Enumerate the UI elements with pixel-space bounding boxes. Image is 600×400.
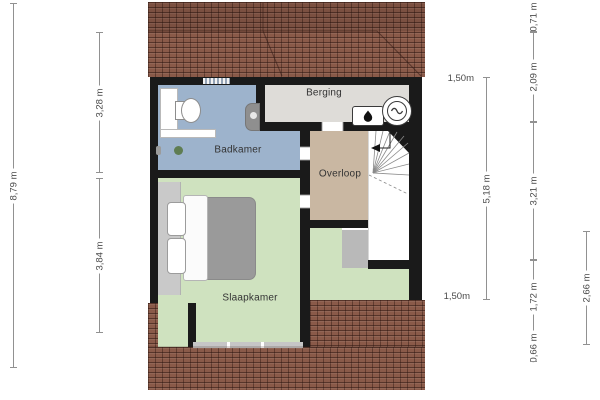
dormer-window [193,342,303,348]
dim-right-chain-1: 2,09 m [530,32,537,122]
dim-right-inner: 5,18 m [483,77,490,300]
bed-sheet [183,195,208,281]
dim-left-bottom: 3,84 m [96,178,103,333]
wall-left [150,77,158,303]
bed-pillow-top [167,202,186,236]
door-slaapkamer [300,195,310,208]
sink-tap [250,112,257,119]
plant [174,146,183,155]
dim-right-outer: 2,66 m [583,231,590,345]
boiler-coil-icon [383,97,411,125]
dim-left-top: 3,28 m [96,32,103,173]
drain [156,146,161,155]
headroom-label-bottom: 1,50m [430,291,470,302]
dim-right-chain-4: 0,66 m [530,334,537,362]
toilet-bowl [181,98,201,123]
wall-dormer-left [188,303,196,347]
wall-overloop-bottom [303,220,368,228]
door-badkamer [300,147,310,160]
door-berging [322,122,343,131]
floorplan-canvas: Badkamer Berging Overloop Slaapkamer 8,7… [0,0,600,400]
badkamer-wall-vent [203,78,230,84]
dim-right-chain-3: 1,72 m [530,260,537,334]
room-label-badkamer: Badkamer [214,145,261,156]
floor-gray-patch [342,230,368,268]
roof-bottom-right [310,300,425,347]
dim-left-total: 8,79 m [10,3,17,368]
window-mullion [227,342,230,348]
floor-stairwell [368,131,410,260]
bed-pillow-bottom [167,238,186,274]
room-label-slaapkamer: Slaapkamer [222,293,277,304]
headroom-label-top: 1,50m [434,73,474,84]
bath-ledge [160,129,216,138]
room-label-overloop: Overloop [319,169,361,180]
wall-top [150,77,422,85]
fireplace [352,106,384,126]
roof-top-upper-slope [148,2,425,31]
window-mullion [261,342,264,348]
boiler-unit [382,96,412,126]
wall-overloop-left [300,131,310,347]
dim-right-chain-2: 3,21 m [530,122,537,260]
room-label-berging: Berging [306,88,342,99]
floor-slaapkamer-right [310,268,409,300]
roof-bottom-band [148,347,425,390]
bed-duvet [204,197,256,280]
flame-icon [353,107,383,125]
dim-right-chain-0: 0,71 m [530,2,537,32]
wall-stairwell-bottom [368,260,409,269]
wall-badkamer-bottom [150,170,303,178]
